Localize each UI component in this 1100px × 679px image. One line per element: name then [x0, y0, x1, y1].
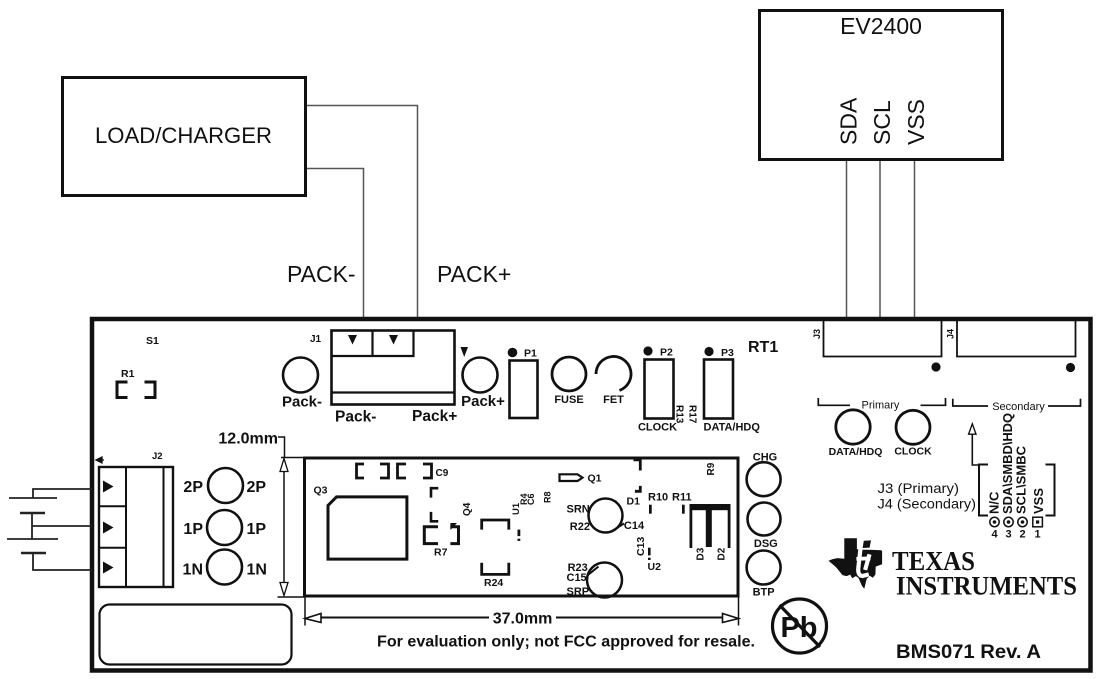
svg-text:DATA/HDQ: DATA/HDQ [704, 422, 761, 434]
svg-text:SRP: SRP [567, 586, 590, 598]
svg-text:C15: C15 [567, 572, 587, 584]
svg-text:C14: C14 [624, 520, 645, 532]
svg-text:C9: C9 [436, 468, 449, 479]
svg-text:37.0mm: 37.0mm [493, 611, 553, 628]
svg-text:Q4: Q4 [462, 502, 473, 516]
svg-text:INSTRUMENTS: INSTRUMENTS [896, 572, 1077, 601]
svg-text:D2: D2 [717, 547, 728, 560]
svg-text:VSS: VSS [1031, 488, 1046, 514]
svg-text:P1: P1 [524, 348, 537, 360]
svg-text:SCL: SCL [869, 100, 895, 145]
svg-text:Pack+: Pack+ [412, 408, 457, 425]
svg-text:2P: 2P [247, 479, 267, 496]
svg-text:FUSE: FUSE [554, 394, 583, 406]
svg-text:CLOCK: CLOCK [894, 446, 932, 458]
svg-text:R17: R17 [687, 405, 698, 424]
svg-text:FET: FET [603, 394, 624, 406]
svg-text:BTP: BTP [753, 587, 775, 599]
svg-text:R11: R11 [672, 492, 692, 504]
svg-text:Q1: Q1 [588, 473, 602, 485]
svg-text:12.0mm: 12.0mm [218, 431, 278, 448]
svg-text:J3: J3 [812, 329, 822, 339]
svg-text:SDA: SDA [836, 97, 862, 145]
svg-text:U2: U2 [648, 561, 662, 573]
svg-text:1P: 1P [183, 521, 203, 538]
svg-text:2: 2 [1019, 529, 1025, 541]
svg-text:Pack-: Pack- [335, 409, 376, 426]
svg-text:2P: 2P [183, 479, 203, 496]
svg-text:Pack+: Pack+ [461, 393, 505, 410]
svg-text:1N: 1N [183, 562, 203, 579]
svg-text:D1: D1 [627, 496, 641, 508]
svg-text:CLOCK: CLOCK [638, 422, 677, 434]
svg-text:S1: S1 [146, 335, 159, 347]
svg-text:BMS071 Rev. A: BMS071 Rev. A [896, 642, 1041, 663]
svg-text:1N: 1N [247, 562, 267, 579]
svg-text:DATA/HDQ: DATA/HDQ [829, 446, 883, 458]
svg-text:DSG: DSG [754, 538, 778, 550]
svg-text:SCL\SMBC: SCL\SMBC [1014, 445, 1029, 514]
svg-text:Primary: Primary [862, 400, 900, 412]
svg-text:EV2400: EV2400 [840, 13, 922, 39]
svg-text:Pack-: Pack- [282, 394, 322, 411]
svg-text:For evaluation only; not FCC a: For evaluation only; not FCC approved fo… [377, 634, 755, 651]
svg-text:P2: P2 [660, 347, 673, 359]
svg-text:R7: R7 [434, 547, 448, 559]
svg-text:4: 4 [991, 529, 998, 541]
svg-text:R22: R22 [570, 521, 590, 533]
svg-text:LOAD/CHARGER: LOAD/CHARGER [95, 123, 272, 148]
svg-text:R1: R1 [121, 368, 135, 380]
svg-text:C6: C6 [526, 493, 536, 505]
svg-text:RT1: RT1 [748, 339, 778, 356]
svg-text:Secondary: Secondary [992, 401, 1045, 413]
svg-text:1P: 1P [247, 521, 267, 538]
svg-text:PACK-: PACK- [287, 261, 356, 287]
svg-text:PACK+: PACK+ [437, 261, 511, 287]
svg-text:P3: P3 [721, 347, 734, 359]
svg-text:R24: R24 [484, 577, 503, 589]
svg-text:R10: R10 [648, 492, 668, 504]
svg-text:1: 1 [1035, 529, 1041, 541]
svg-text:C13: C13 [635, 537, 647, 556]
svg-text:SRN: SRN [567, 504, 590, 516]
svg-text:J2: J2 [152, 451, 163, 462]
svg-text:Q3: Q3 [314, 485, 328, 497]
svg-text:R8: R8 [543, 491, 553, 503]
svg-text:D3: D3 [696, 547, 707, 560]
svg-text:J3 (Primary): J3 (Primary) [878, 480, 960, 496]
svg-text:VSS: VSS [903, 99, 929, 145]
svg-text:J1: J1 [310, 334, 322, 345]
svg-text:3: 3 [1005, 529, 1011, 541]
svg-text:R13: R13 [674, 405, 685, 424]
svg-text:J4: J4 [946, 329, 956, 339]
svg-text:R9: R9 [706, 462, 717, 475]
svg-text:J4 (Secondary): J4 (Secondary) [878, 496, 977, 512]
